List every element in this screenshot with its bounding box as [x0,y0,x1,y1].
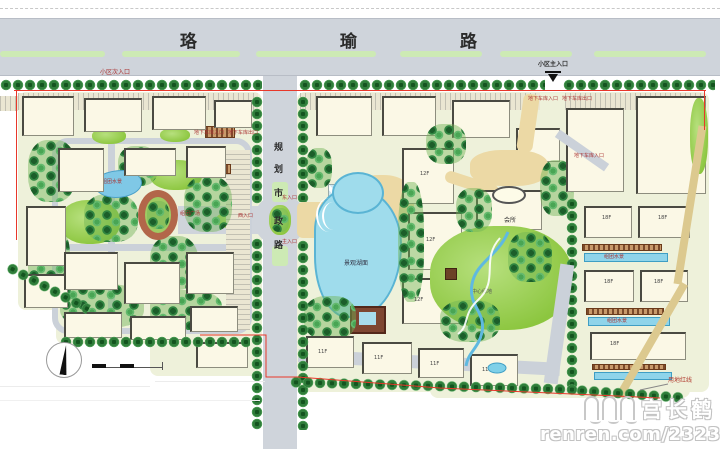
tree-row [60,336,250,348]
scale-bar-tick [162,362,163,370]
road-median [256,51,376,57]
lake-terrace [322,202,344,230]
tree-column [297,96,309,202]
garage-in-label: 地下车库入口 [574,154,604,160]
floor-label: 12F [414,298,423,303]
road-name-char: 珞 [180,27,197,52]
tree-grove [84,194,138,242]
pergola-row [582,244,662,251]
linear-pool [584,253,668,262]
building [186,146,226,178]
building [584,270,634,302]
floor-label: 11F [430,362,439,367]
scale-bar-segment [92,364,106,368]
garage-out-label: 地下车库出口 [228,131,258,137]
floor-label: 18F [654,280,663,285]
pergola-row [586,308,664,315]
oval-plaza-trees [147,201,169,229]
road-median [500,51,572,57]
floor-label: 11F [374,356,383,361]
west-entrance-label: 西入口 [238,214,253,220]
clubhouse-oval [492,186,526,204]
scale-bar [92,360,164,372]
road-median [400,51,482,57]
tree-grove [456,188,492,232]
building [124,262,180,304]
lawn [160,128,190,142]
lake-label: 景观湖面 [344,258,368,267]
road-name-char: 路 [460,27,477,52]
floor-label: 18F [602,216,611,221]
site-boundary-line [704,90,705,130]
building [316,96,372,136]
floor-label: 11F [318,350,327,355]
site-boundary-line [16,90,17,240]
watermark-logo-icon [584,396,599,420]
tree-grove [306,148,332,188]
building [64,252,118,290]
parking-strip [226,150,250,330]
clubhouse-label: 会所 [504,218,516,225]
faded-road-line [155,381,265,382]
watermark-brand: 宫长鹤 [641,394,716,424]
cluster-pond-label: 组团水景 [102,180,122,186]
building [124,148,176,176]
building [418,348,464,378]
municipal-road-char: 规 [274,140,283,153]
main-entrance-arrow-icon [545,71,561,73]
building [362,342,412,374]
building [186,252,234,294]
building [26,206,66,266]
road-median [122,51,240,57]
tree-grove [184,176,232,232]
watermark-logo-icon [602,396,617,420]
floor-label: 12F [426,238,435,243]
main-entrance-arrow-icon [548,74,558,82]
garage-in-label: 地下车库入口 [528,97,558,103]
tree-grove [426,124,466,164]
central-green-label: 中心绿地 [472,290,492,296]
scale-bar-segment [120,364,134,368]
floor-label: 18F [610,342,619,347]
linear-pool-label: 组团水景 [604,255,624,261]
watermark-logo-icon [620,396,635,420]
building [64,312,122,338]
road-median [594,51,706,57]
road-median [0,51,105,57]
faded-road-line [0,400,260,401]
tree-column [251,96,263,204]
building [84,98,142,132]
floor-label: 11F [482,368,491,373]
tree-grove [440,300,500,342]
top-dashed-line [0,8,720,9]
garage-out-label: 地下车库出口 [562,97,592,103]
floor-label: 18F [604,280,613,285]
garage-in-label: 地下车库入口 [194,131,224,137]
building [584,206,632,238]
municipal-road-char: 划 [274,162,283,175]
inner-main-entrance-label: 主入口 [282,240,297,246]
site-boundary-label: 用地红线 [668,378,692,385]
lake-pavilion-pool [359,312,376,325]
tree-grove [304,296,356,340]
pergola-row [592,364,666,370]
linear-pool-label: 组团水景 [607,319,627,325]
tree-column [297,240,309,430]
building [306,336,354,368]
tree-grove [398,182,424,302]
watermark-url: renren.com/232333316 [540,424,720,445]
building [22,96,74,136]
building [152,96,206,130]
building [214,100,252,128]
secondary-entrance-label: 小区次入口 [100,70,130,77]
site-boundary-line [14,90,706,91]
road-name-char: 瑜 [340,27,357,52]
tree-grove [508,232,552,282]
tree-column [251,238,263,430]
master-plan-canvas: 珞 瑜 路 规 划 市 政 路 [0,0,720,449]
hill-pavilion [445,268,457,280]
building [58,148,104,192]
building [190,306,238,332]
faded-road-line [0,386,150,387]
floor-label: 12F [420,172,429,177]
cluster-plaza-label: 组团广场 [180,212,200,218]
east-entrance-label: 东入口 [282,196,297,202]
luoyu-road: 珞 瑜 路 [0,18,720,76]
floor-label: 18F [658,216,667,221]
main-entrance-label: 小区主入口 [538,62,568,69]
municipal-road-char: 政 [274,214,283,227]
